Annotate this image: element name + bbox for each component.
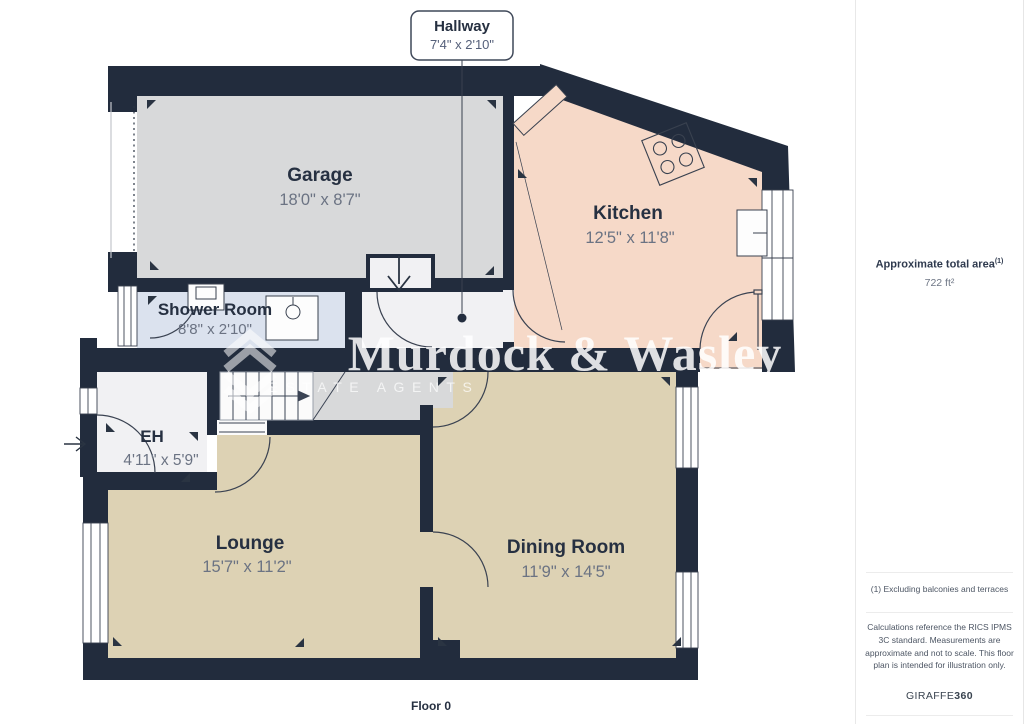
total-area-block: Approximate total area(1) 722 ft² <box>856 258 1023 289</box>
wall-bottom <box>83 658 698 680</box>
garage-door <box>111 102 134 258</box>
opening-hall-lounge <box>217 420 267 435</box>
kitchen-label: Kitchen <box>593 203 663 224</box>
wall-dining-jog <box>433 640 460 660</box>
wall-garage-top <box>108 66 545 96</box>
callout-room-dims: 7'4" x 2'10" <box>430 37 494 52</box>
garage-label: Garage <box>287 165 352 186</box>
dining-room-floor <box>433 372 676 658</box>
dining-room-dims: 11'9" x 14'5" <box>521 563 610 581</box>
disclaimer-text: Calculations reference the RICS IPMS 3C … <box>864 621 1015 672</box>
total-area-label: Approximate total area(1) <box>856 258 1023 271</box>
shower-room-label: Shower Room <box>158 300 272 319</box>
callout-anchor-dot <box>458 314 467 323</box>
info-sidebar: Approximate total area(1) 722 ft² (1) Ex… <box>855 0 1024 724</box>
wall-garage-left-top <box>108 66 137 112</box>
giraffe360-logo-text: GIRAFFE <box>906 690 954 702</box>
eh-dims: 4'11" x 5'9" <box>123 452 198 469</box>
wall-eh-bottom <box>88 472 217 490</box>
wall-left-upper <box>80 338 97 388</box>
total-area-label-text: Approximate total area <box>876 259 995 271</box>
floor-label: Floor 0 <box>411 699 451 713</box>
window-shower <box>118 286 137 346</box>
giraffe360-logo: GIRAFFE360 <box>856 690 1023 702</box>
lounge-label: Lounge <box>216 533 285 554</box>
window-eh <box>80 388 97 414</box>
window-dining-2 <box>676 572 698 648</box>
window-lounge <box>83 523 108 643</box>
shower-tray-icon <box>266 296 318 340</box>
wall-garage-bottom-right <box>435 278 513 292</box>
giraffe360-logo-suffix: 360 <box>954 690 973 702</box>
shower-room-dims: 8'8" x 2'10" <box>178 321 252 338</box>
front-entrance-recess <box>370 258 431 288</box>
garage-dims: 18'0" x 8'7" <box>279 191 360 209</box>
opening-lounge-dining <box>420 532 433 587</box>
watermark-brand: Murdock & Wasley <box>348 325 783 381</box>
sidebar-divider-1 <box>866 572 1013 573</box>
wall-lounge-dining <box>420 405 433 658</box>
floorplan-page: Murdock & Wasley ESTATE AGENTS Garage 18… <box>0 0 1024 724</box>
callout-room-name: Hallway <box>434 18 491 35</box>
area-footnote: (1) Excluding balconies and terraces <box>860 584 1019 594</box>
total-area-footnote-ref: (1) <box>995 258 1004 265</box>
window-dining-1 <box>676 387 698 468</box>
sidebar-divider-2 <box>866 612 1013 613</box>
total-area-value: 722 ft² <box>856 277 1023 289</box>
lounge-dims: 15'7" x 11'2" <box>202 558 291 576</box>
kitchen-dims: 12'5" x 11'8" <box>585 229 674 247</box>
wall-garage-bottom-left <box>108 278 370 292</box>
sidebar-divider-3 <box>866 715 1013 716</box>
eh-label: EH <box>140 427 164 446</box>
garage-floor <box>137 96 503 278</box>
watermark-tagline: ESTATE AGENTS <box>269 379 480 395</box>
dining-room-label: Dining Room <box>507 537 625 558</box>
